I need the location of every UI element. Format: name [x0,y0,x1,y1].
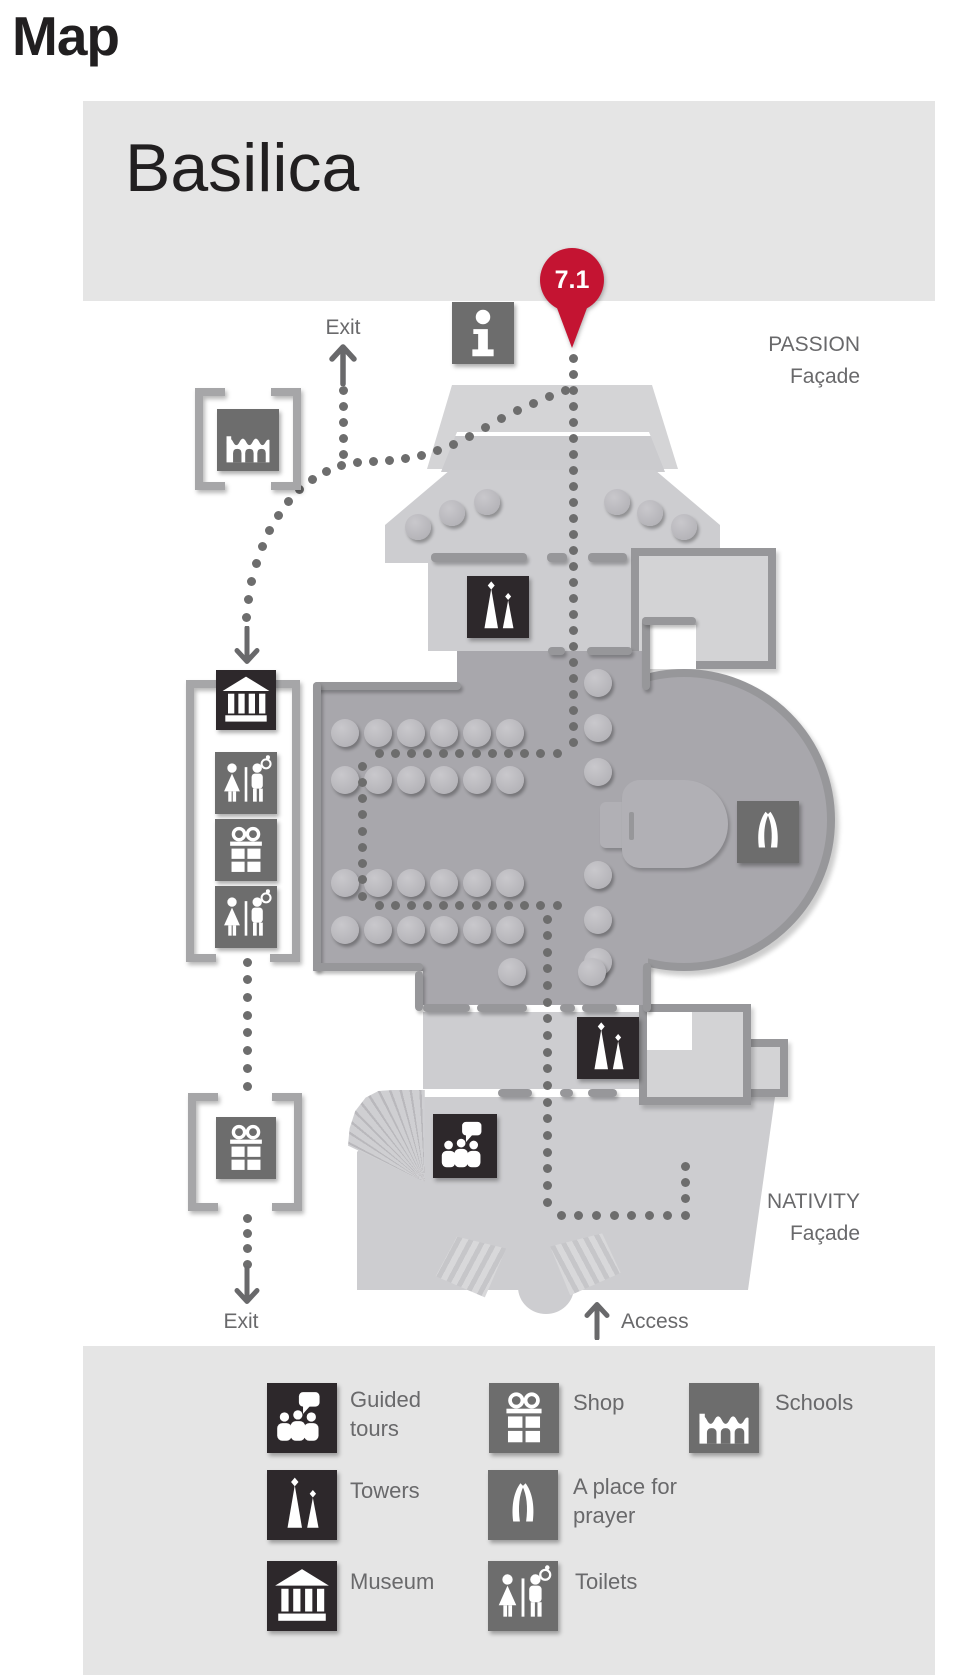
museum-icon [216,670,276,730]
exit-bottom-label: Exit [198,1306,284,1338]
schools-icon [217,409,279,471]
legend-schools-label: Schools [775,1388,853,1417]
place-for-prayer-icon [737,801,799,863]
ambulatory-lower-notch [647,1012,692,1050]
guided-tours-icon [433,1114,497,1178]
legend-towers-label: Towers [350,1476,420,1505]
exit-top-arrow-icon [328,342,358,386]
access-arrow-icon [583,1300,611,1340]
nativity-facade-label: NATIVITY Façade [560,1186,860,1250]
legend-shop-icon [489,1383,559,1453]
map-page: Map Basilica [0,0,972,1675]
location-pin-7-1[interactable]: 7.1 [540,248,606,350]
legend-shop-label: Shop [573,1388,624,1417]
toilets-lower-icon [215,886,277,948]
information-icon [452,302,514,364]
legend-schools-icon [689,1383,759,1453]
map-header-title: Basilica [125,129,359,207]
legend-museum-icon [267,1561,337,1631]
toilets-upper-icon [215,752,277,814]
legend-prayer-label: A place for prayer [573,1472,691,1530]
access-label: Access [621,1306,689,1338]
altar [622,780,728,868]
exit-down-arrow-icon [232,1266,262,1306]
page-title: Map [12,4,119,68]
route-down-arrow-icon [232,626,262,666]
towers-nativity-icon [577,1017,639,1079]
legend-guided-tours-label: Guided tours [350,1385,450,1443]
pin-label: 7.1 [540,248,604,312]
legend-prayer-icon [488,1470,558,1540]
legend-toilets-icon [488,1561,558,1631]
legend-guided-tours-icon [267,1383,337,1453]
shop-upper-icon [215,819,277,881]
towers-passion-icon [467,576,529,638]
upper-crossing [428,563,648,651]
altar-mark [629,812,634,840]
map-header-panel: Basilica [83,101,935,301]
shop-exit-icon [216,1117,276,1179]
passion-porch-inner [441,432,665,472]
legend-toilets-label: Toilets [575,1567,637,1596]
exit-top-label: Exit [300,312,386,344]
ambulatory-upper-notch [650,625,696,669]
legend-towers-icon [267,1470,337,1540]
legend-museum-label: Museum [350,1567,434,1596]
